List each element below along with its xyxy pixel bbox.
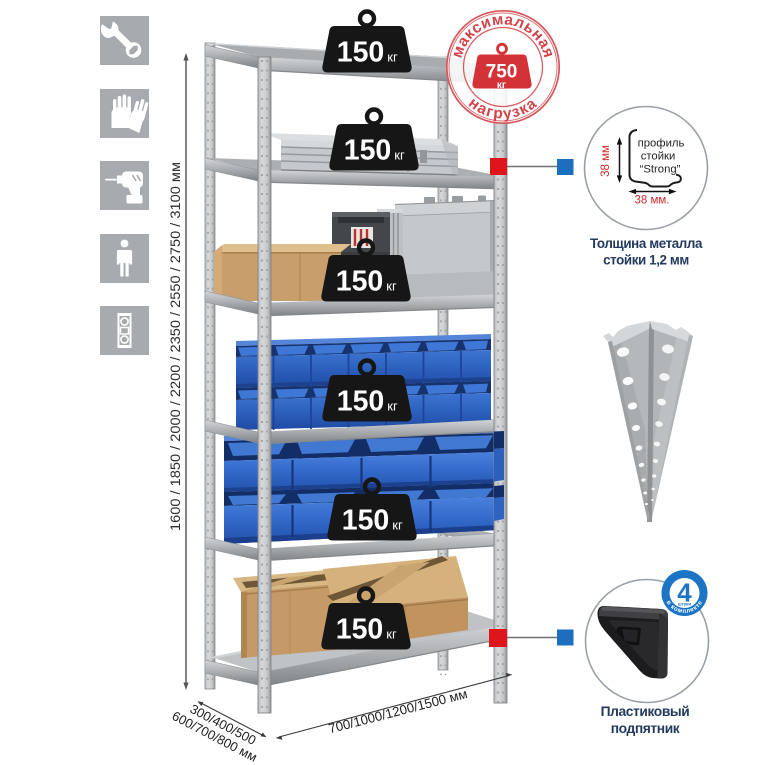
svg-text:Пластиковый: Пластиковый (601, 704, 690, 719)
svg-text:профиль: профиль (638, 138, 685, 150)
svg-text:1600 / 1850 / 2000 / 2200 / 23: 1600 / 1850 / 2000 / 2200 / 2350 / 2550 … (168, 162, 183, 531)
svg-text:штуки: штуки (678, 602, 691, 607)
svg-text:стойки 1,2 мм: стойки 1,2 мм (603, 253, 689, 268)
svg-text:стойки: стойки (641, 151, 676, 163)
svg-text:кг: кг (497, 80, 506, 91)
svg-text:Толщина металла: Толщина металла (590, 236, 703, 251)
svg-text:“Strong”: “Strong” (640, 164, 681, 176)
svg-text:подпятник: подпятник (611, 721, 680, 736)
svg-text:38 мм.: 38 мм. (635, 195, 670, 207)
svg-text:38 мм: 38 мм (600, 145, 612, 177)
